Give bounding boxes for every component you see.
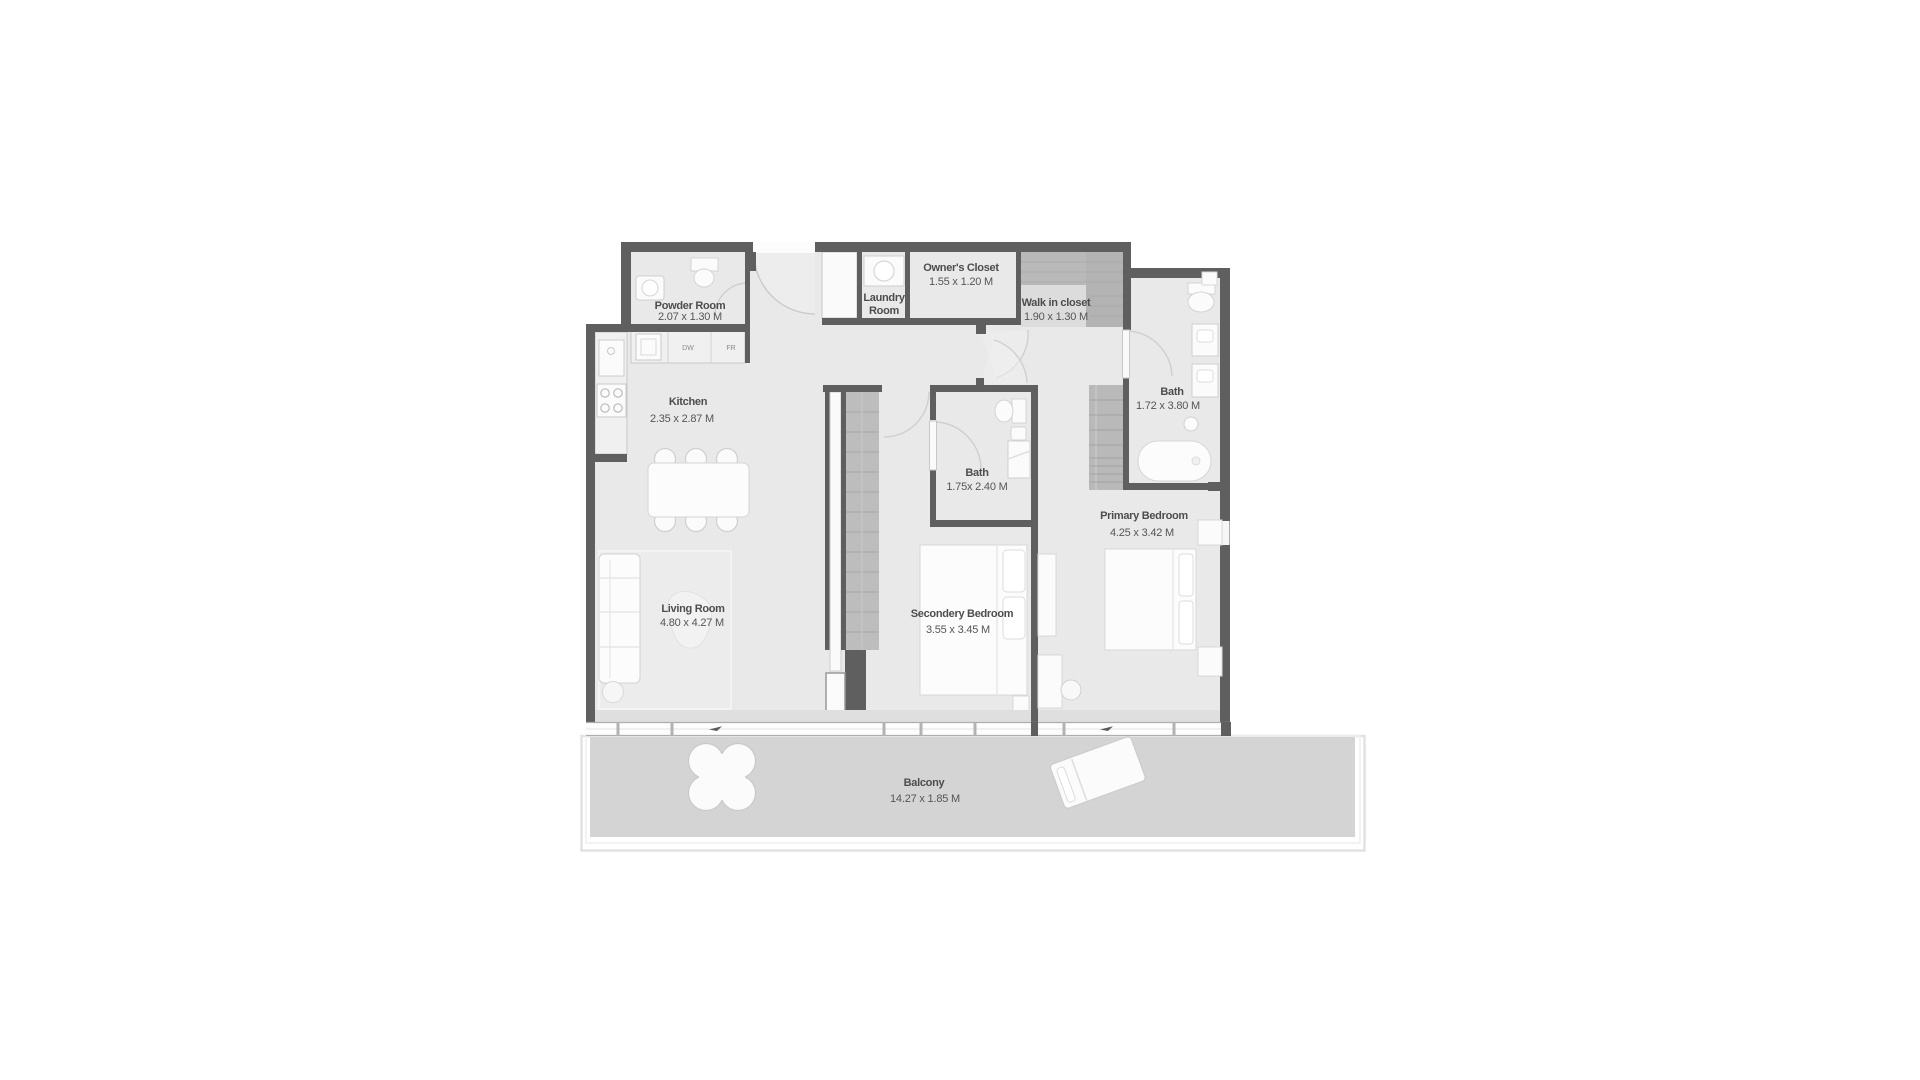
svg-text:Laundry: Laundry [863, 292, 905, 304]
svg-text:1.55 x 1.20 M: 1.55 x 1.20 M [929, 276, 993, 288]
svg-text:1.75x 2.40 M: 1.75x 2.40 M [946, 481, 1007, 493]
svg-text:Bath: Bath [965, 467, 989, 479]
svg-text:1.90 x 1.30 M: 1.90 x 1.30 M [1024, 311, 1088, 323]
svg-text:Bath: Bath [1160, 386, 1184, 398]
svg-text:Living Room: Living Room [661, 603, 725, 615]
svg-text:3.55 x 3.45 M: 3.55 x 3.45 M [926, 624, 990, 636]
svg-text:1.72 x 3.80 M: 1.72 x 3.80 M [1136, 400, 1200, 412]
svg-text:Room: Room [869, 305, 899, 317]
svg-text:2.07 x 1.30 M: 2.07 x 1.30 M [658, 311, 722, 323]
svg-text:Balcony: Balcony [904, 777, 946, 789]
svg-text:2.35 x 2.87 M: 2.35 x 2.87 M [650, 413, 714, 425]
svg-text:FR: FR [726, 345, 735, 352]
svg-text:4.80 x 4.27 M: 4.80 x 4.27 M [660, 617, 724, 629]
svg-text:Primary Bedroom: Primary Bedroom [1100, 510, 1188, 522]
svg-text:Owner's Closet: Owner's Closet [923, 262, 999, 274]
svg-text:14.27 x 1.85 M: 14.27 x 1.85 M [890, 793, 960, 805]
svg-text:DW: DW [682, 345, 694, 352]
svg-text:Kitchen: Kitchen [669, 396, 708, 408]
svg-text:Secondery Bedroom: Secondery Bedroom [911, 608, 1014, 620]
svg-text:4.25 x 3.42 M: 4.25 x 3.42 M [1110, 527, 1174, 539]
svg-text:Walk in closet: Walk in closet [1022, 297, 1091, 309]
